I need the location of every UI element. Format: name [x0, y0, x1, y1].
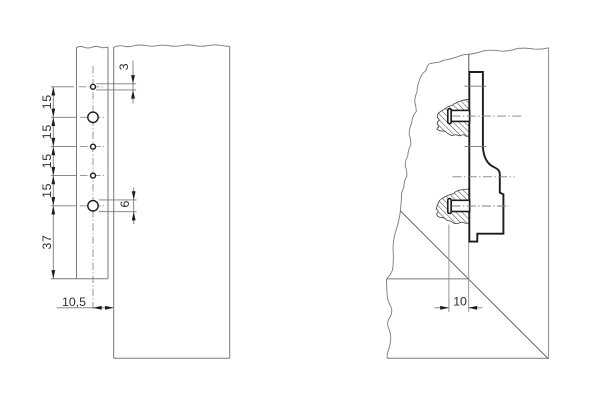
svg-text:10,5: 10,5: [62, 295, 86, 309]
svg-text:6: 6: [118, 201, 132, 208]
svg-text:10: 10: [453, 295, 467, 309]
svg-text:37: 37: [40, 234, 54, 249]
svg-text:3: 3: [117, 63, 131, 70]
svg-text:15: 15: [40, 124, 54, 139]
svg-text:15: 15: [40, 94, 54, 109]
svg-text:15: 15: [40, 183, 54, 198]
svg-text:15: 15: [40, 153, 54, 168]
